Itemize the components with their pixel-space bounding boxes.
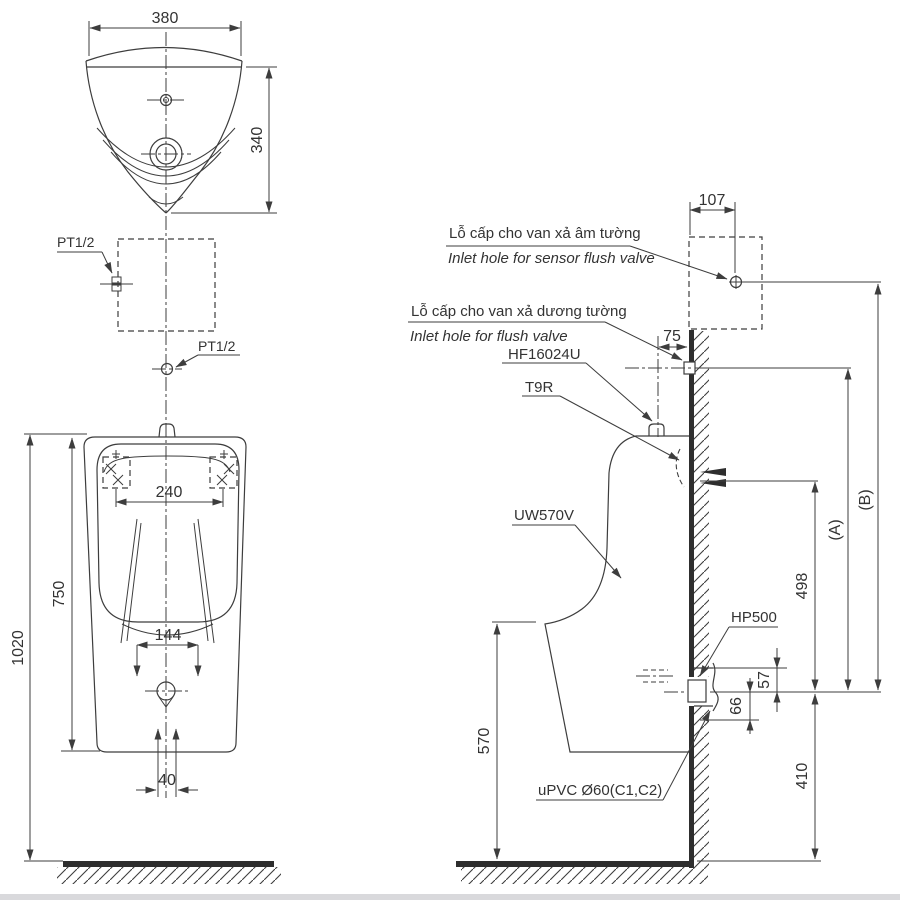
dim-66-label: 66 [728,697,745,715]
side-view: 107 Lỗ cấp cho van xả âm tường Inlet hol… [408,192,881,884]
dim-B-label: (B) [857,489,874,510]
dim-75-label: 75 [663,328,681,345]
leader-line [102,252,112,273]
inlet-fitting [112,277,121,283]
fitting-flange [688,680,706,702]
part-t9r-label: T9R [525,379,554,396]
leader-line [176,355,198,367]
note-sensor-vi: Lỗ cấp cho van xả âm tường [449,225,641,242]
fixing-mark-left [106,450,123,485]
dim-107-label: 107 [699,192,726,209]
floor-line-right [456,861,694,867]
dim-570-label: 570 [476,728,493,755]
leader-line [560,396,679,460]
dim-340-label: 340 [249,127,266,154]
note-flush-vi: Lỗ cấp cho van xả dương tường [411,303,627,320]
inlet-fitting [112,285,121,291]
top-view-outline-right [166,61,242,213]
pipe-break-line [713,663,718,711]
part-hf16024u-label: HF16024U [508,346,581,363]
dim-240-label: 240 [156,484,183,501]
fixing-mark-right [217,450,234,485]
dim-498-label: 498 [794,573,811,600]
front-view: 240 144 40 750 1020 [10,424,281,884]
pt12-top-label: PT1/2 [57,234,95,250]
urinal-profile [545,436,689,752]
floor-line-left [63,861,274,867]
dim-144-label: 144 [155,627,182,644]
drawing-canvas: 380 340 PT1/2 PT1/2 [0,0,900,900]
valve-box-side-dashed [689,237,762,329]
top-view: 380 340 [86,10,277,213]
hidden-inlet-curve [676,449,684,487]
top-view-outline-top [86,48,242,62]
rim-ledge [104,456,230,472]
part-hp500-label: HP500 [731,609,777,626]
spud-front [159,424,175,437]
rim-opening [97,444,239,622]
technical-drawing: 380 340 PT1/2 PT1/2 [0,0,900,900]
dim-A-label: (A) [827,519,844,540]
note-sensor-en: Inlet hole for sensor flush valve [448,250,655,267]
leader-line [586,363,652,421]
dim-750-label: 750 [51,581,68,608]
note-flush-en: Inlet hole for flush valve [410,328,568,345]
bowl-wall-left [121,519,141,643]
wall-hatch [694,331,709,867]
pt12-bottom-label: PT1/2 [198,338,236,354]
dim-1020-label: 1020 [10,630,27,666]
dim-57-label: 57 [756,671,773,689]
top-view-outline-left [86,61,166,213]
image-bottom-edge [0,894,900,900]
dim-380-label: 380 [152,10,179,27]
dim-410-label: 410 [794,763,811,790]
dim-40-label: 40 [158,772,176,789]
leader-line [575,525,621,578]
floor-hatch-right [461,867,708,884]
spud-side [649,424,664,436]
floor-hatch-left [57,867,281,884]
part-upvc-label: uPVC Ø60(C1,C2) [538,782,662,799]
concealed-valve-box-front: PT1/2 PT1/2 [57,32,240,798]
part-uw570v-label: UW570V [514,507,574,524]
